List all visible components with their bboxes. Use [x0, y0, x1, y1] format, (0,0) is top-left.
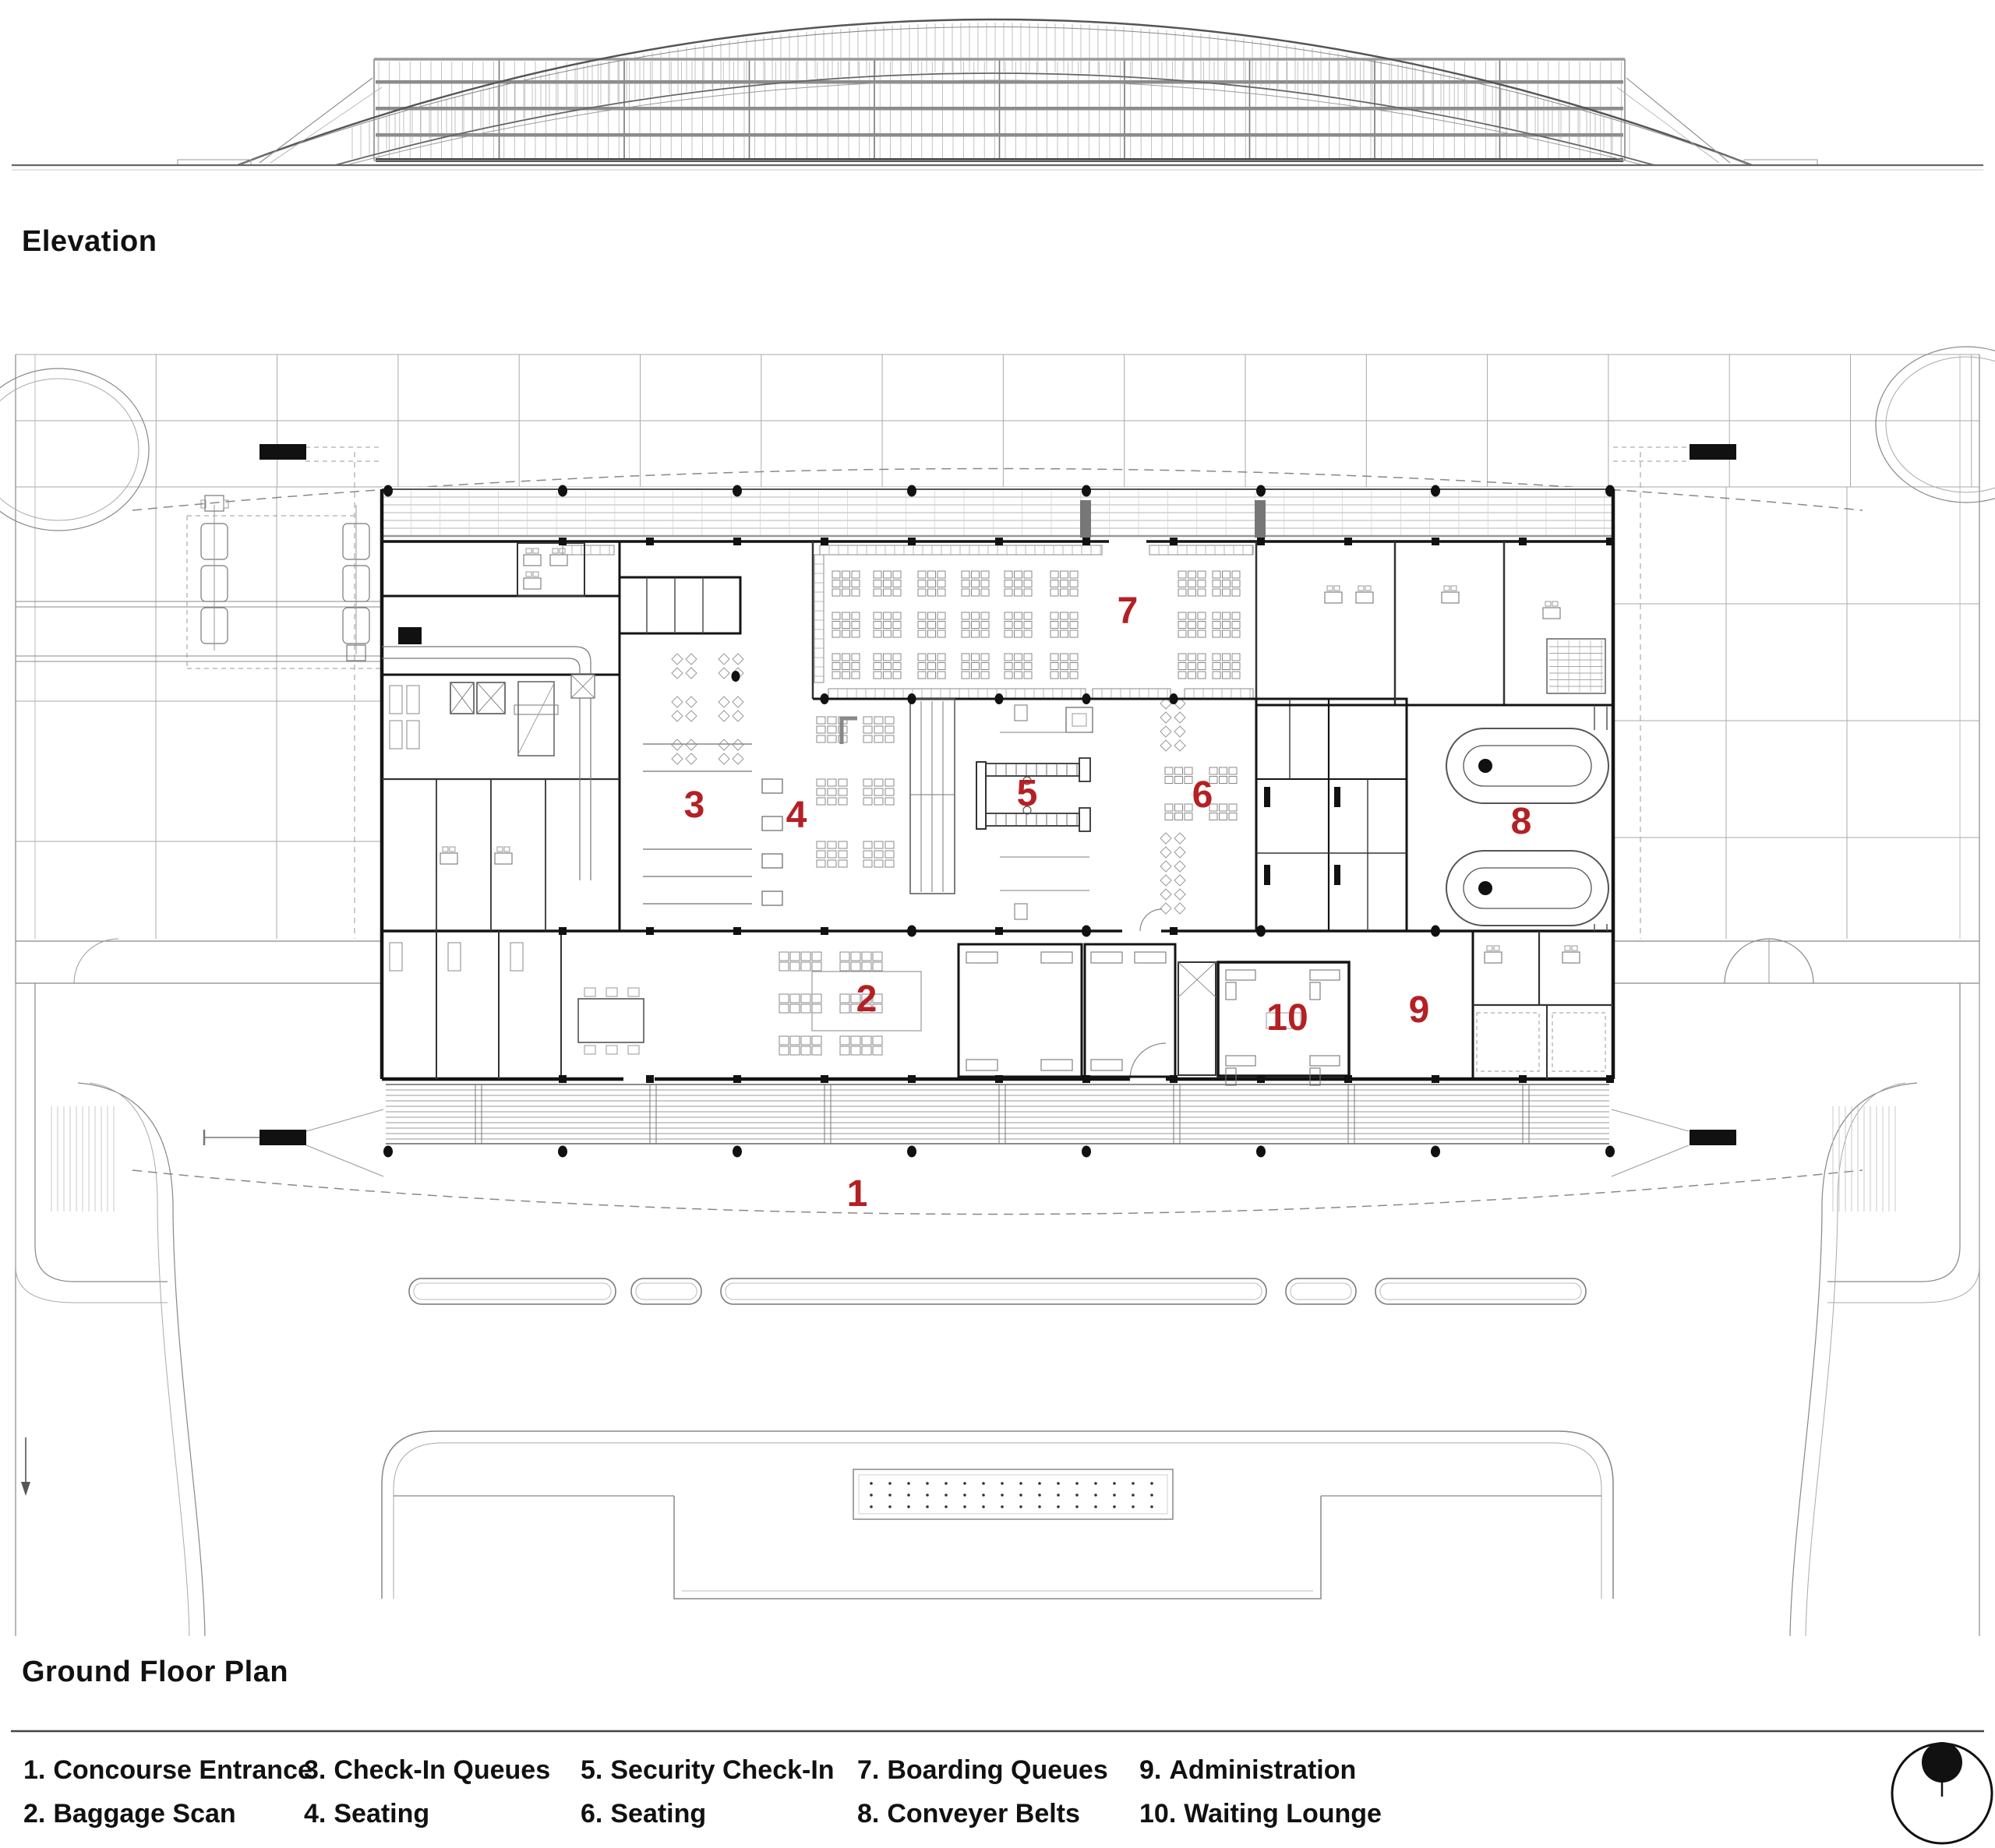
double-door-leaf — [1769, 939, 1813, 983]
roundabout-left-inner — [0, 379, 139, 520]
legend-item-3: 3.Check-In Queues — [304, 1755, 550, 1785]
roundabout-left — [0, 369, 149, 531]
elevation-drawing — [12, 19, 1983, 170]
ramp-curve-right-2 — [1806, 1083, 1905, 1636]
plan-number-7: 7 — [1118, 591, 1139, 632]
dropoff-islands — [409, 1278, 1586, 1304]
legend-item-10: 10.Waiting Lounge — [1139, 1799, 1382, 1829]
legend-item-7: 7.Boarding Queues — [857, 1755, 1108, 1785]
plan-number-3: 3 — [684, 785, 705, 826]
legend-item-9: 9.Administration — [1139, 1755, 1356, 1785]
ramp-curve-right — [1790, 1083, 1917, 1636]
plan-number-4: 4 — [786, 795, 807, 836]
traffic-arrow-head — [21, 1482, 30, 1496]
plan-number-8: 8 — [1511, 801, 1532, 842]
roundabout-right-inner — [1886, 357, 1995, 492]
plan-number-5: 5 — [1017, 773, 1038, 814]
forecourt-canopy — [382, 1431, 1613, 1599]
arch-strut-left — [260, 78, 373, 163]
plan-number-1: 1 — [847, 1173, 868, 1215]
plan-number-2: 2 — [856, 979, 877, 1020]
ramp-curve-left — [78, 1083, 205, 1636]
ramp-hatching — [51, 1106, 1895, 1211]
stair-treads — [383, 1084, 1615, 1158]
terminal-building — [382, 485, 1615, 1086]
legend-item-4: 4.Seating — [304, 1799, 429, 1829]
legend: 1.Concourse Entrance 2.Baggage Scan 3.Ch… — [11, 1731, 1992, 1843]
roundabout-right — [1876, 347, 1995, 503]
north-arrow-icon — [1892, 1742, 1992, 1843]
baggage-feed-block — [398, 627, 422, 644]
drawing-canvas: Elevation — [0, 0, 1995, 1848]
baggage-cart-train — [201, 496, 369, 661]
legend-item-5: 5.Security Check-In — [581, 1755, 835, 1785]
elevation-facade-hatching — [352, 23, 1630, 162]
legend-item-2: 2.Baggage Scan — [23, 1799, 236, 1829]
entrance-stairs — [383, 1084, 1615, 1158]
arch-strut-right — [1626, 78, 1730, 163]
roof-anchor-tab — [1690, 444, 1736, 460]
roof-anchor-tab — [260, 444, 306, 460]
legend-item-1: 1.Concourse Entrance — [23, 1755, 312, 1785]
elevation-label: Elevation — [22, 225, 157, 258]
plan-number-10: 10 — [1266, 997, 1308, 1039]
plan-number-9: 9 — [1409, 989, 1430, 1031]
plan-number-6: 6 — [1192, 774, 1213, 816]
baggage-apron — [16, 496, 394, 668]
skylight-panel — [853, 1469, 1173, 1519]
roof-anchor-tab — [260, 1130, 306, 1145]
roof-anchor-tab — [1690, 1130, 1736, 1145]
skylight-dots — [870, 1482, 1153, 1508]
arch-strut-left-2 — [270, 87, 382, 163]
legend-item-6: 6.Seating — [581, 1799, 706, 1829]
vestibule-pier — [1255, 500, 1266, 538]
ramp-curve-left-2 — [90, 1083, 189, 1636]
vestibule-pier — [1080, 500, 1091, 538]
plan-label: Ground Floor Plan — [22, 1656, 288, 1688]
architectural-sheet: Elevation — [0, 0, 1995, 1848]
double-door-leaf — [1725, 939, 1769, 983]
legend-item-8: 8.Conveyer Belts — [857, 1799, 1080, 1829]
